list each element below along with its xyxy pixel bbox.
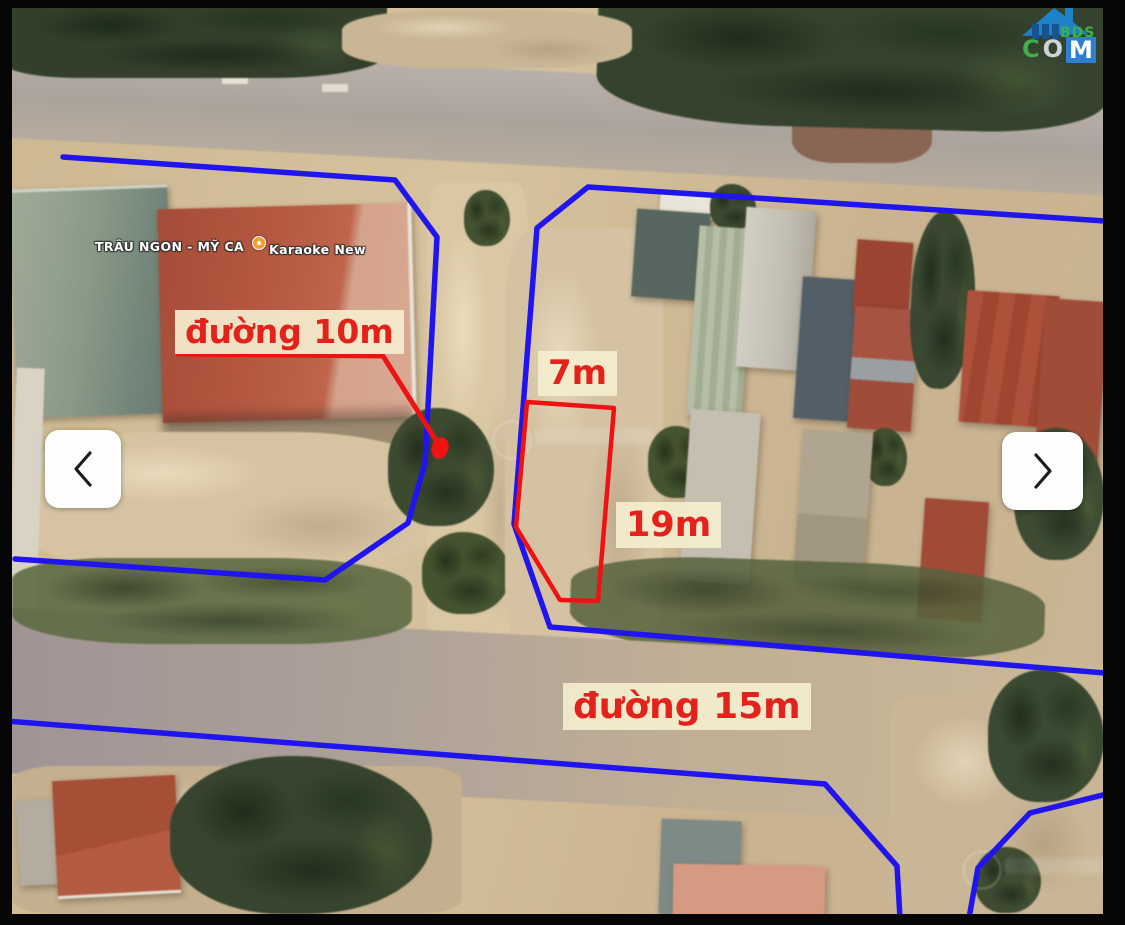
road10-marker <box>429 435 452 461</box>
logo-letter-o: O <box>1043 37 1063 63</box>
chevron-right-icon <box>1030 452 1056 490</box>
boundary-right-block <box>514 187 1103 673</box>
boundary-road-south <box>12 721 900 914</box>
screenshot-root: đường 10m 7m 19m đường 15m TRÂU NGON - M… <box>0 0 1125 925</box>
poi-karaoke-label: Karaoke New <box>269 242 366 257</box>
next-image-button[interactable] <box>1002 432 1083 510</box>
poi-restaurant-label: TRÂU NGON - MỸ CA <box>95 239 244 254</box>
bds-com-logo: BDS C O M <box>1020 4 1100 68</box>
boundary-left-block <box>15 157 437 580</box>
previous-image-button[interactable] <box>45 430 121 508</box>
plot-width-label: 7m <box>538 351 617 396</box>
road-15m-label: đường 15m <box>563 683 811 730</box>
logo-letter-m: M <box>1066 37 1096 63</box>
boundary-annotations <box>12 8 1103 914</box>
road10-leader-line <box>178 354 437 442</box>
karaoke-poi-icon <box>252 236 266 250</box>
logo-letter-c: C <box>1022 37 1040 63</box>
plot-depth-label: 19m <box>616 502 721 548</box>
logo-com-text: C O M <box>1022 37 1096 63</box>
boundary-branch-road <box>969 794 1103 914</box>
chevron-left-icon <box>70 450 96 488</box>
road-10m-label: đường 10m <box>175 310 404 354</box>
satellite-photo: đường 10m 7m 19m đường 15m TRÂU NGON - M… <box>12 8 1103 914</box>
